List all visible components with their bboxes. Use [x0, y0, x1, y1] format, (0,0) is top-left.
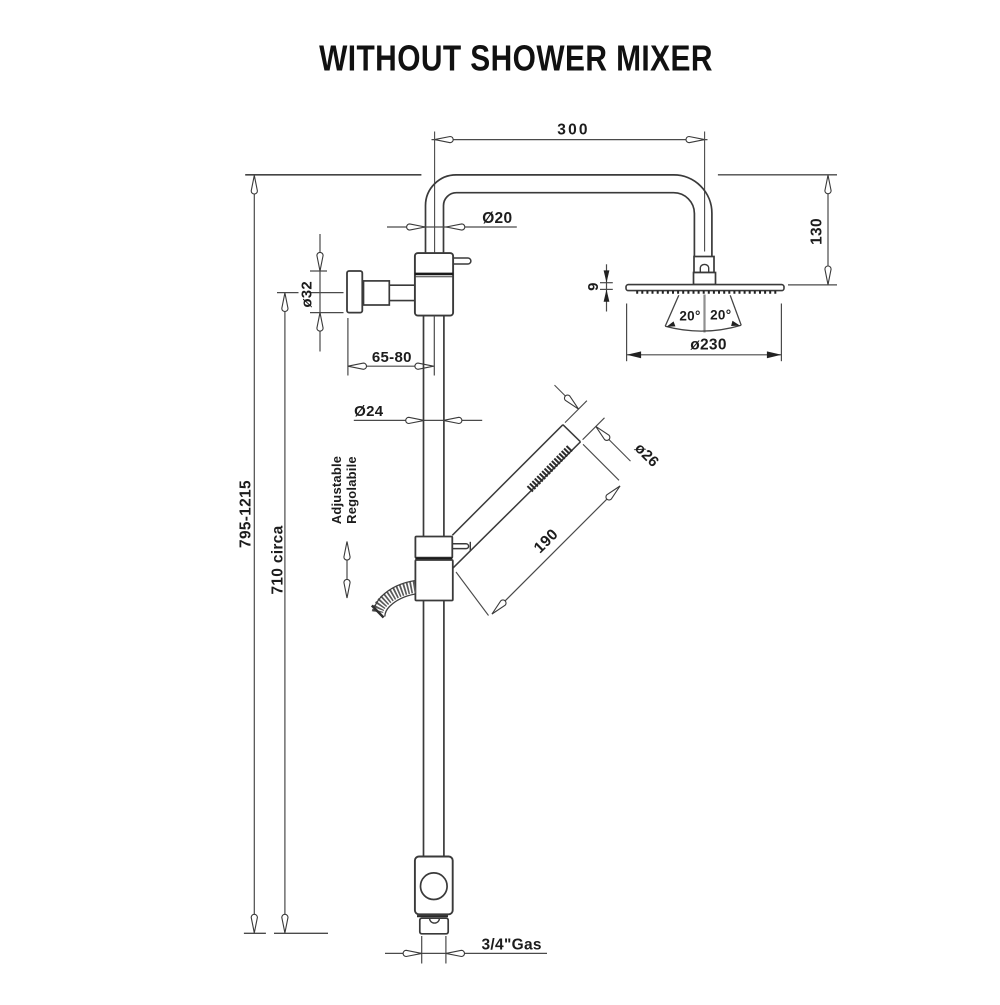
svg-text:ø230: ø230 — [690, 337, 727, 354]
svg-text:Adjustable: Adjustable — [329, 456, 344, 524]
svg-text:WITHOUT SHOWER MIXER: WITHOUT SHOWER MIXER — [319, 39, 713, 79]
svg-text:130: 130 — [808, 218, 825, 245]
svg-text:20°: 20° — [710, 308, 731, 323]
svg-text:ø32: ø32 — [299, 281, 316, 308]
svg-text:300: 300 — [557, 122, 589, 139]
svg-text:Ø20: Ø20 — [482, 210, 512, 227]
svg-text:65-80: 65-80 — [372, 349, 412, 366]
svg-text:795-1215: 795-1215 — [238, 480, 255, 548]
svg-text:710 circa: 710 circa — [269, 525, 286, 594]
svg-text:9: 9 — [585, 282, 602, 291]
svg-text:Regolabile: Regolabile — [344, 456, 359, 524]
svg-text:Ø24: Ø24 — [354, 403, 384, 420]
svg-text:20°: 20° — [679, 309, 700, 324]
svg-text:3/4"Gas: 3/4"Gas — [482, 937, 542, 954]
